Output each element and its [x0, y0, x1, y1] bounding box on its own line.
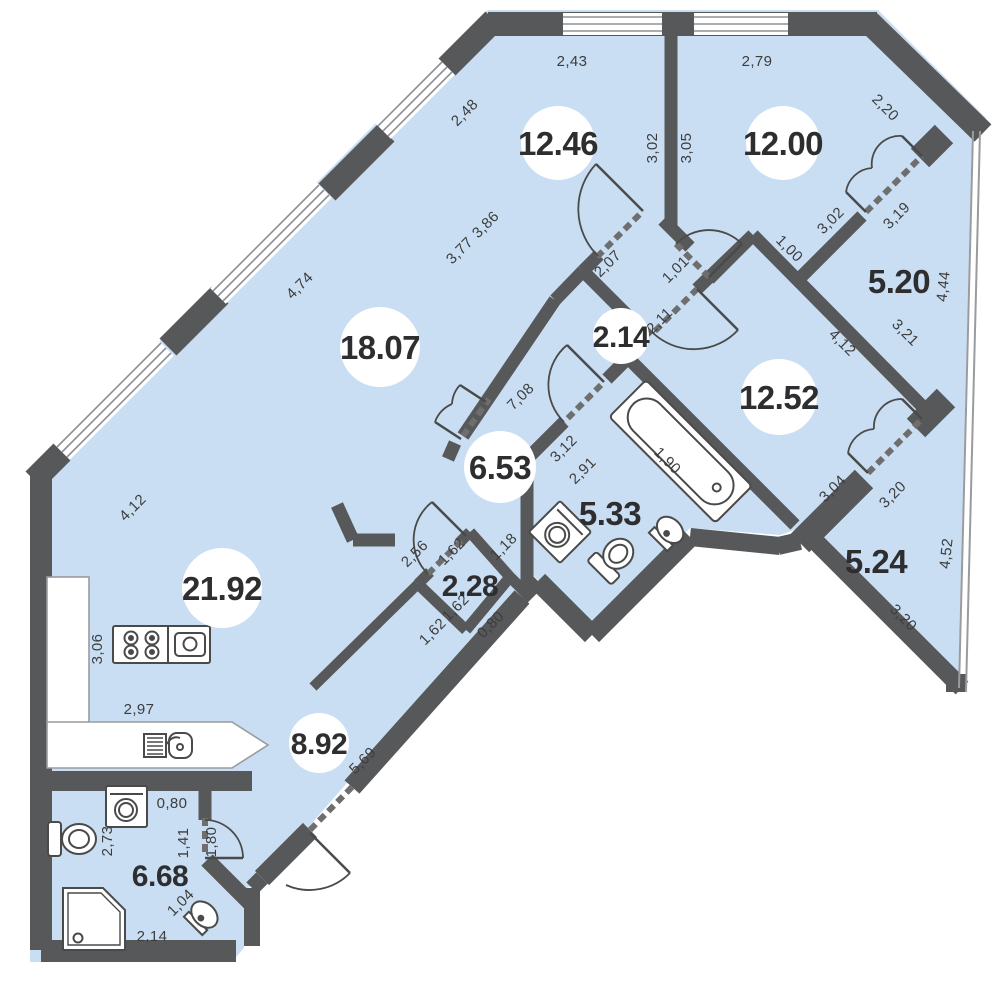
dim-label: 3,02	[644, 133, 661, 164]
dim-label: 0,80	[157, 795, 188, 812]
floor-plan-drawing: 2,43 2,79 3,02 3,05 2,48 3,86 3,77 4,74 …	[0, 0, 1000, 1000]
room-label-2-28: 2.28	[442, 570, 498, 603]
room-label-6-68: 6.68	[132, 860, 188, 893]
dim-label: 3,06	[89, 634, 106, 665]
room-label-6-53: 6.53	[464, 431, 536, 503]
room-label-21-92: 21.92	[182, 548, 262, 628]
room-area-value: 18.07	[340, 329, 420, 366]
floor-plan-page: 2,43 2,79 3,02 3,05 2,48 3,86 3,77 4,74 …	[0, 0, 1000, 1000]
room-area-value: 12.52	[739, 379, 819, 416]
dim-label: 2,73	[99, 826, 116, 857]
room-label-8-92: 8.92	[289, 713, 349, 773]
toilet-icon	[48, 822, 96, 856]
room-area-value: 12.46	[518, 125, 598, 162]
room-area-value: 12.00	[743, 125, 823, 162]
stove-icon	[113, 626, 210, 663]
room-label-18-07: 18.07	[340, 307, 420, 387]
dim-label: 3,05	[678, 133, 695, 164]
room-area-value: 2.14	[593, 321, 650, 354]
room-area-value: 21.92	[182, 570, 262, 607]
dim-label: 2,79	[742, 53, 773, 70]
room-area-value: 8.92	[291, 728, 347, 761]
room-area-value: 6.53	[469, 449, 531, 486]
dim-label: 2,43	[557, 53, 588, 70]
room-area-value: 2.28	[442, 570, 498, 603]
room-area-value: 6.68	[132, 860, 188, 893]
room-label-5-24: 5.24	[845, 543, 908, 580]
dim-label: 2,14	[137, 928, 168, 945]
dim-label: 1,80	[203, 827, 220, 858]
room-area-value: 5.20	[868, 263, 930, 300]
kitchen-counter	[47, 577, 89, 723]
room-label-5-20: 5.20	[868, 263, 930, 300]
door-arc	[286, 873, 350, 890]
room-area-value: 5.24	[845, 543, 908, 580]
dim-label: 4,44	[933, 270, 953, 302]
room-area-value: 5.33	[579, 495, 641, 532]
wall-block	[946, 674, 966, 692]
room-label-5-33: 5.33	[579, 495, 641, 532]
dim-label: 4,52	[936, 537, 956, 569]
washing-machine-icon	[106, 786, 147, 827]
dim-label: 2,97	[124, 701, 155, 718]
dim-label: 1,41	[175, 828, 192, 859]
